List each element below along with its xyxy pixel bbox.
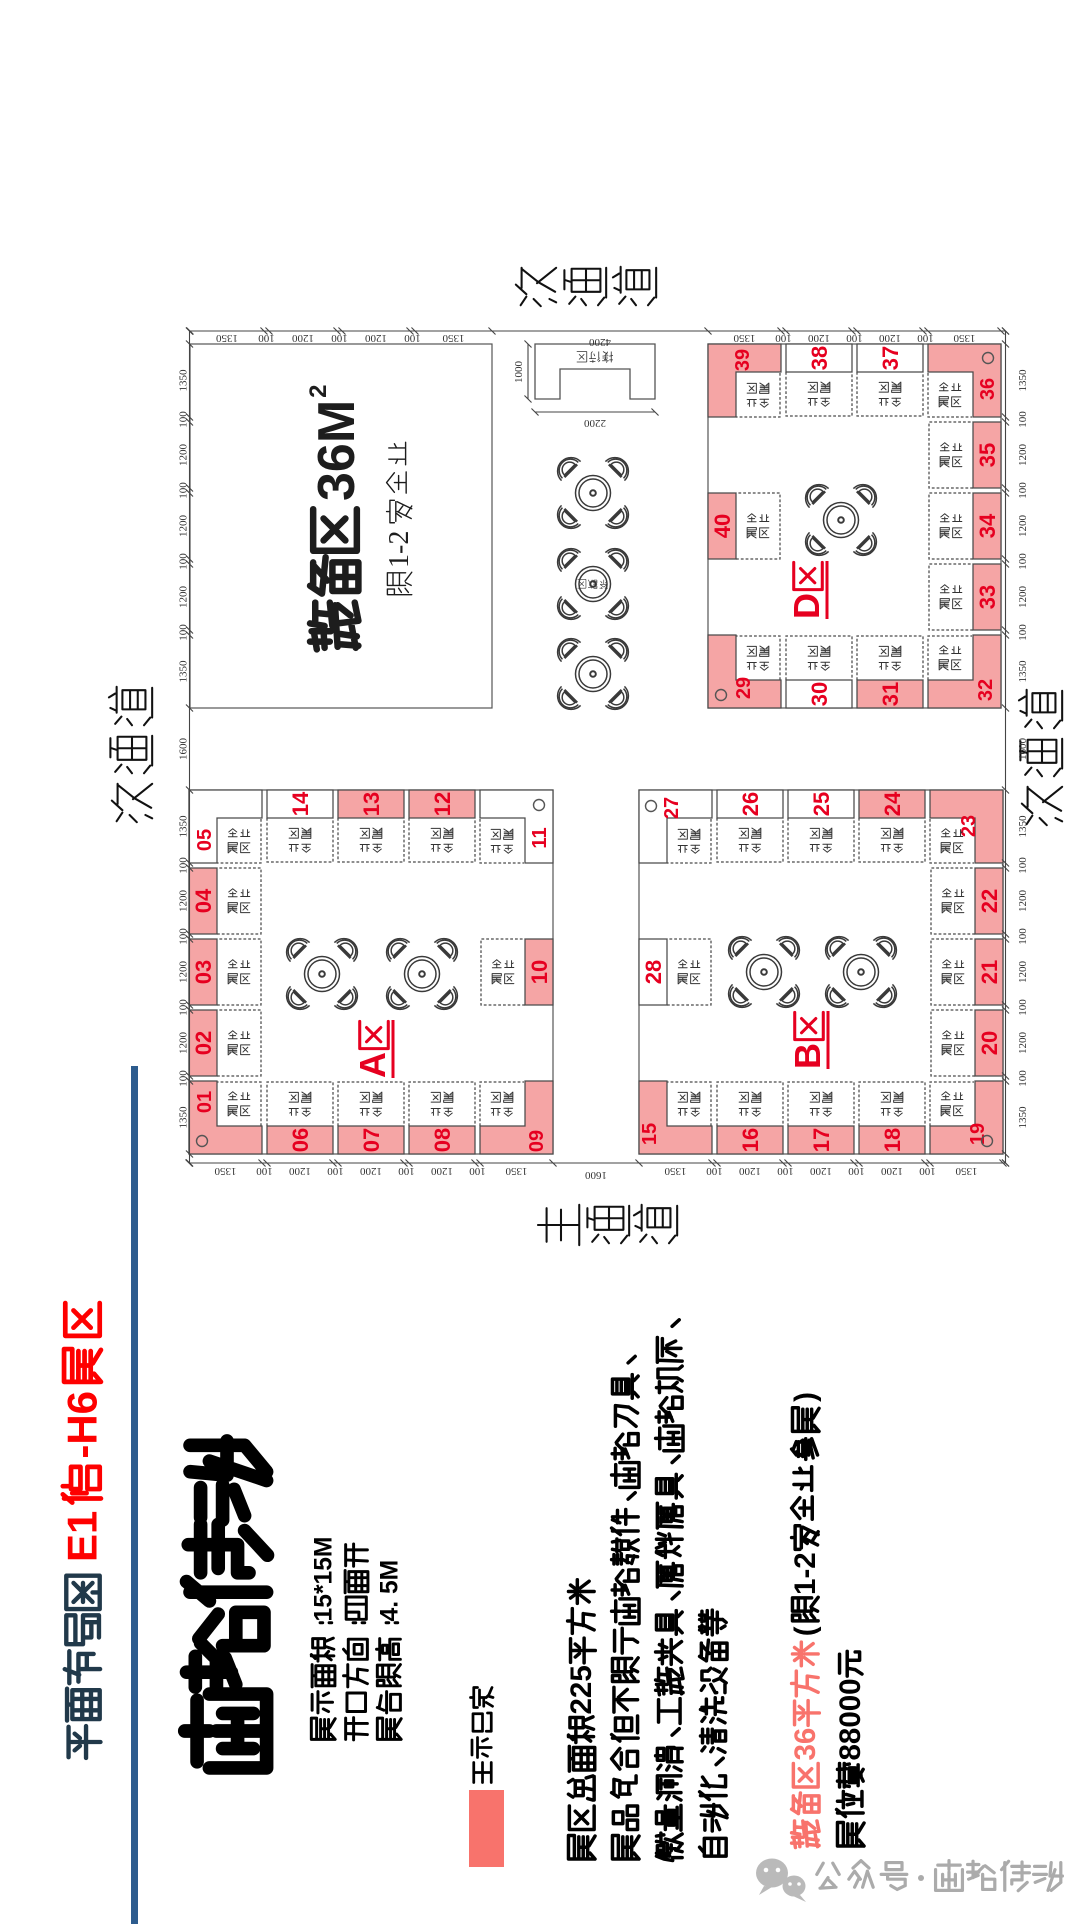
svg-text:1000: 1000 (513, 361, 525, 384)
svg-text:39: 39 (732, 349, 754, 371)
svg-text:36M: 36M (308, 400, 366, 501)
svg-text:100: 100 (178, 482, 190, 499)
svg-text:04: 04 (191, 888, 216, 913)
svg-text:19: 19 (967, 1123, 989, 1145)
svg-text:A: A (352, 1052, 393, 1078)
svg-text:-H6: -H6 (58, 1391, 105, 1459)
svg-text:1350: 1350 (442, 332, 465, 344)
svg-text:1200: 1200 (810, 1165, 833, 1177)
svg-text:1350: 1350 (1017, 815, 1029, 838)
svg-text:16: 16 (738, 1128, 763, 1152)
svg-text:B: B (787, 1043, 828, 1069)
svg-text:100: 100 (706, 1165, 723, 1177)
svg-text:100: 100 (1017, 624, 1029, 641)
svg-text:100: 100 (777, 1165, 794, 1177)
svg-text:20: 20 (977, 1031, 1002, 1055)
svg-text:1600: 1600 (178, 738, 190, 761)
svg-text:31: 31 (878, 682, 903, 706)
svg-text:100: 100 (1017, 553, 1029, 570)
svg-text:13: 13 (359, 792, 384, 816)
svg-text:26: 26 (738, 792, 763, 816)
svg-text:E1: E1 (58, 1511, 105, 1562)
svg-text:1200: 1200 (292, 332, 315, 344)
svg-text:27: 27 (661, 797, 683, 819)
svg-text:1350: 1350 (1017, 660, 1029, 683)
svg-text:1200: 1200 (881, 1165, 904, 1177)
svg-text:03: 03 (191, 960, 216, 984)
svg-text:2: 2 (305, 385, 332, 398)
svg-text:100: 100 (1017, 1070, 1029, 1087)
svg-text:100: 100 (178, 857, 190, 874)
svg-text:100: 100 (469, 1165, 486, 1177)
svg-text:1200: 1200 (879, 332, 902, 344)
svg-text:1200: 1200 (360, 1165, 383, 1177)
svg-text:1350: 1350 (733, 332, 756, 344)
svg-text:100: 100 (331, 332, 348, 344)
svg-text:100: 100 (398, 1165, 415, 1177)
svg-text:100: 100 (848, 1165, 865, 1177)
svg-text:1200: 1200 (431, 1165, 454, 1177)
svg-text:14: 14 (288, 791, 313, 816)
svg-text:100: 100 (178, 928, 190, 945)
svg-text:100: 100 (846, 332, 863, 344)
svg-text:1350: 1350 (178, 369, 190, 392)
svg-text:01: 01 (194, 1091, 216, 1113)
svg-text:1200: 1200 (1017, 961, 1029, 984)
svg-text:1200: 1200 (1017, 890, 1029, 913)
svg-text:07: 07 (359, 1128, 384, 1152)
svg-text:1200: 1200 (178, 444, 190, 467)
svg-text:38: 38 (807, 346, 832, 370)
svg-text:100: 100 (178, 999, 190, 1016)
svg-text:1350: 1350 (178, 1106, 190, 1129)
svg-text:100: 100 (1017, 857, 1029, 874)
svg-text:1350: 1350 (664, 1165, 687, 1177)
svg-text:1350: 1350 (1017, 1106, 1029, 1129)
svg-text:1-2: 1-2 (384, 531, 415, 568)
svg-text:D: D (786, 593, 827, 619)
svg-text:12: 12 (430, 792, 455, 816)
svg-text:15: 15 (639, 1123, 661, 1145)
svg-text:100: 100 (917, 332, 934, 344)
svg-text:88000: 88000 (834, 1678, 867, 1760)
svg-text:1200: 1200 (739, 1165, 762, 1177)
svg-text:10: 10 (527, 960, 552, 984)
svg-text:100: 100 (178, 624, 190, 641)
svg-text:100: 100 (256, 1165, 273, 1177)
svg-text:100: 100 (1017, 999, 1029, 1016)
svg-text:22: 22 (977, 889, 1002, 913)
svg-text:36: 36 (977, 378, 999, 400)
svg-text:1-2: 1-2 (789, 1552, 822, 1595)
svg-text:1200: 1200 (178, 515, 190, 538)
svg-text:100: 100 (1017, 411, 1029, 428)
svg-text:1200: 1200 (178, 961, 190, 984)
svg-text:36: 36 (789, 1728, 822, 1761)
svg-text:100: 100 (404, 332, 421, 344)
svg-text:24: 24 (880, 791, 905, 816)
svg-text:33: 33 (975, 585, 1000, 609)
svg-text:08: 08 (430, 1128, 455, 1152)
svg-text:29: 29 (733, 677, 755, 699)
svg-text:18: 18 (880, 1128, 905, 1152)
svg-text:1200: 1200 (1017, 586, 1029, 609)
svg-text:): ) (789, 1392, 822, 1402)
svg-text:1350: 1350 (953, 332, 976, 344)
svg-text:1200: 1200 (289, 1165, 312, 1177)
svg-text:1200: 1200 (365, 332, 388, 344)
svg-text:1200: 1200 (178, 890, 190, 913)
svg-text:40: 40 (710, 514, 735, 538)
svg-text:23: 23 (958, 815, 980, 837)
svg-text:37: 37 (878, 346, 903, 370)
svg-text:(: ( (789, 1626, 822, 1636)
svg-text:34: 34 (975, 513, 1000, 538)
svg-text:100: 100 (178, 553, 190, 570)
svg-text:1600: 1600 (1017, 738, 1029, 761)
svg-text:15*15M: 15*15M (311, 1537, 338, 1622)
svg-text:09: 09 (526, 1130, 548, 1152)
svg-text:1200: 1200 (1017, 1032, 1029, 1055)
svg-text:11: 11 (529, 827, 551, 848)
svg-text:35: 35 (975, 443, 1000, 467)
svg-text:05: 05 (194, 829, 216, 851)
svg-text:1200: 1200 (1017, 515, 1029, 538)
svg-text:17: 17 (809, 1128, 834, 1152)
svg-text:1350: 1350 (955, 1165, 978, 1177)
svg-text:100: 100 (178, 411, 190, 428)
svg-text:1350: 1350 (178, 660, 190, 683)
svg-text:32: 32 (975, 679, 997, 701)
svg-text:1350: 1350 (505, 1165, 528, 1177)
svg-text:1600: 1600 (585, 1169, 608, 1181)
svg-text:06: 06 (288, 1128, 313, 1152)
svg-text:30: 30 (807, 682, 832, 706)
svg-text:02: 02 (191, 1031, 216, 1055)
svg-text:1200: 1200 (808, 332, 831, 344)
svg-text:1350: 1350 (214, 1165, 237, 1177)
svg-text:1200: 1200 (178, 1032, 190, 1055)
svg-text:100: 100 (919, 1165, 936, 1177)
svg-text:4200: 4200 (589, 336, 612, 348)
svg-text:100: 100 (258, 332, 275, 344)
svg-text:25: 25 (809, 792, 834, 816)
svg-text:21: 21 (977, 960, 1002, 984)
svg-text:2200: 2200 (584, 417, 607, 429)
svg-text:28: 28 (641, 960, 666, 984)
svg-text:100: 100 (327, 1165, 344, 1177)
svg-text:1350: 1350 (178, 815, 190, 838)
svg-text:1200: 1200 (1017, 444, 1029, 467)
svg-text:225: 225 (565, 1665, 598, 1714)
svg-text:100: 100 (178, 1070, 190, 1087)
svg-text:1350: 1350 (1017, 369, 1029, 392)
svg-text:4. 5M: 4. 5M (377, 1560, 404, 1622)
svg-text:1350: 1350 (216, 332, 239, 344)
svg-text:100: 100 (1017, 928, 1029, 945)
svg-text:100: 100 (1017, 482, 1029, 499)
svg-text:1200: 1200 (178, 586, 190, 609)
svg-text:100: 100 (775, 332, 792, 344)
